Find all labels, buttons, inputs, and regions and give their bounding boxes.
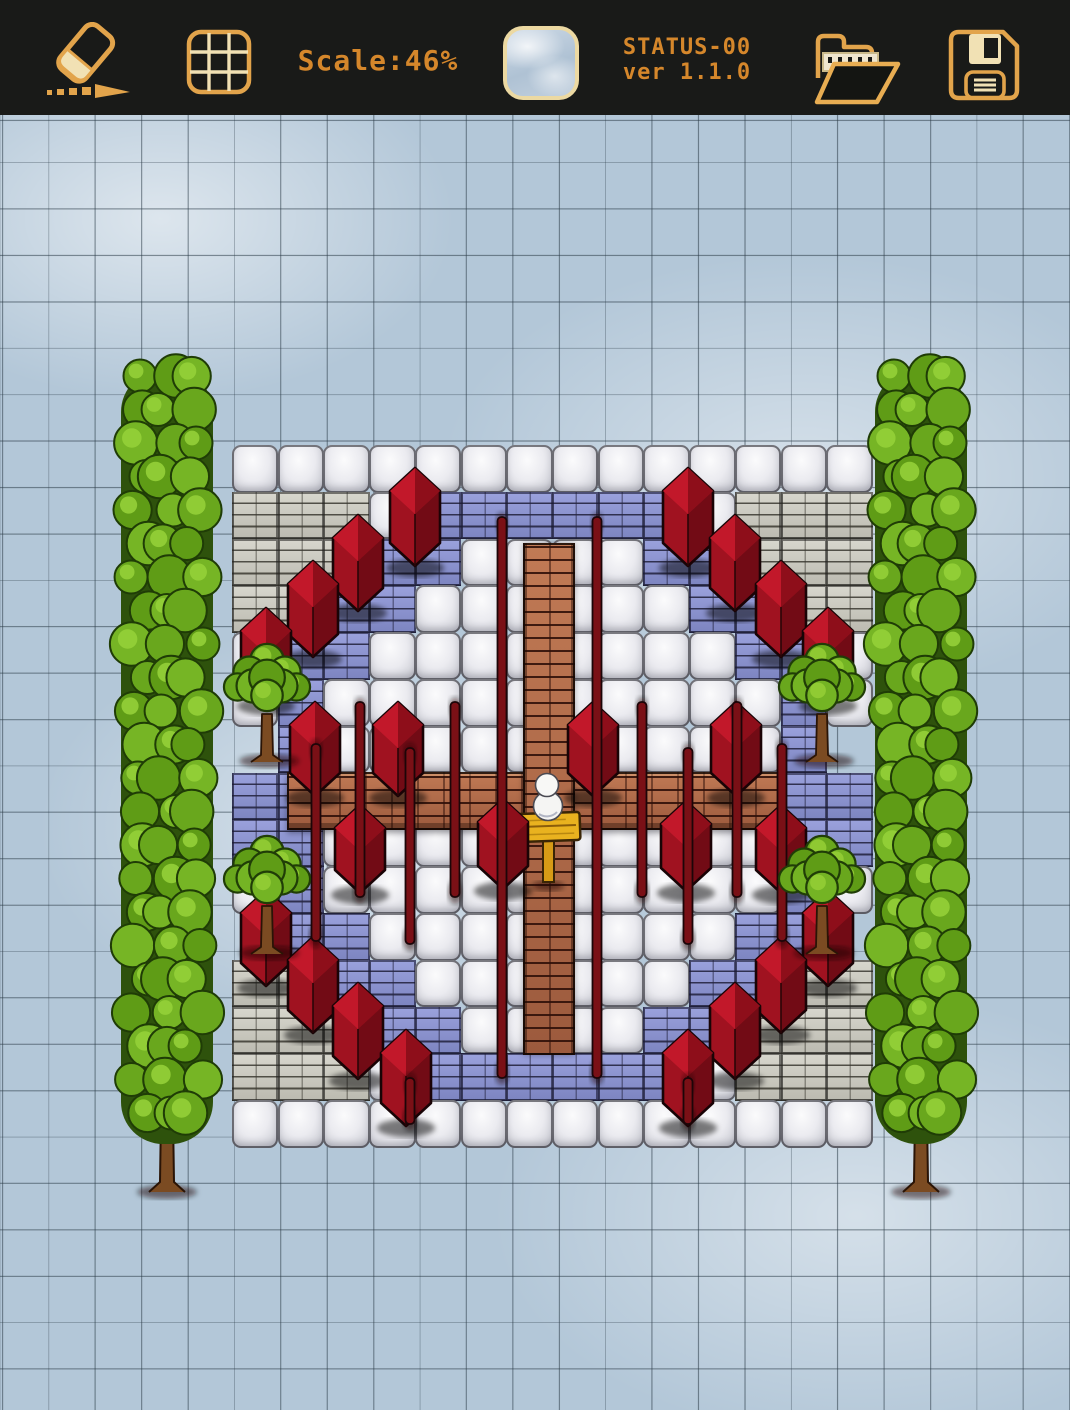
map-canvas[interactable] [0,115,1070,1410]
open-file-button[interactable] [810,26,902,106]
red-pole[interactable] [775,739,789,948]
red-pole[interactable] [448,697,462,904]
status-text: STATUS-00 [598,36,776,60]
red-pole[interactable] [681,743,695,951]
red-pole[interactable] [403,1073,417,1131]
tall-tree[interactable] [110,354,224,1199]
red-pole[interactable] [635,697,649,904]
tall-tree[interactable] [864,354,978,1199]
red-house[interactable] [386,468,444,577]
version-text: ver 1.1.0 [598,61,776,85]
red-pole[interactable] [590,512,604,1085]
save-file-button[interactable] [946,26,1024,104]
scale-label: Scale:46% [288,46,468,76]
red-pole[interactable] [730,697,744,904]
red-pole[interactable] [495,512,509,1085]
open-folder-icon [810,26,902,106]
small-tree[interactable] [224,836,310,960]
tile-preview[interactable] [503,26,579,100]
grid-icon [186,29,252,95]
snowman[interactable] [534,774,563,821]
red-house[interactable] [659,468,717,577]
eraser-tool-button[interactable] [44,22,134,102]
red-pole[interactable] [403,743,417,951]
red-pole[interactable] [353,697,367,904]
eraser-icon [44,22,134,102]
toolbar: Scale:46% STATUS-00 ver 1.1.0 [0,0,1070,116]
red-house[interactable] [369,702,427,807]
red-pole[interactable] [681,1073,695,1131]
save-floppy-icon [946,26,1024,104]
grid-toggle-button[interactable] [186,29,252,95]
red-pole[interactable] [309,739,323,948]
